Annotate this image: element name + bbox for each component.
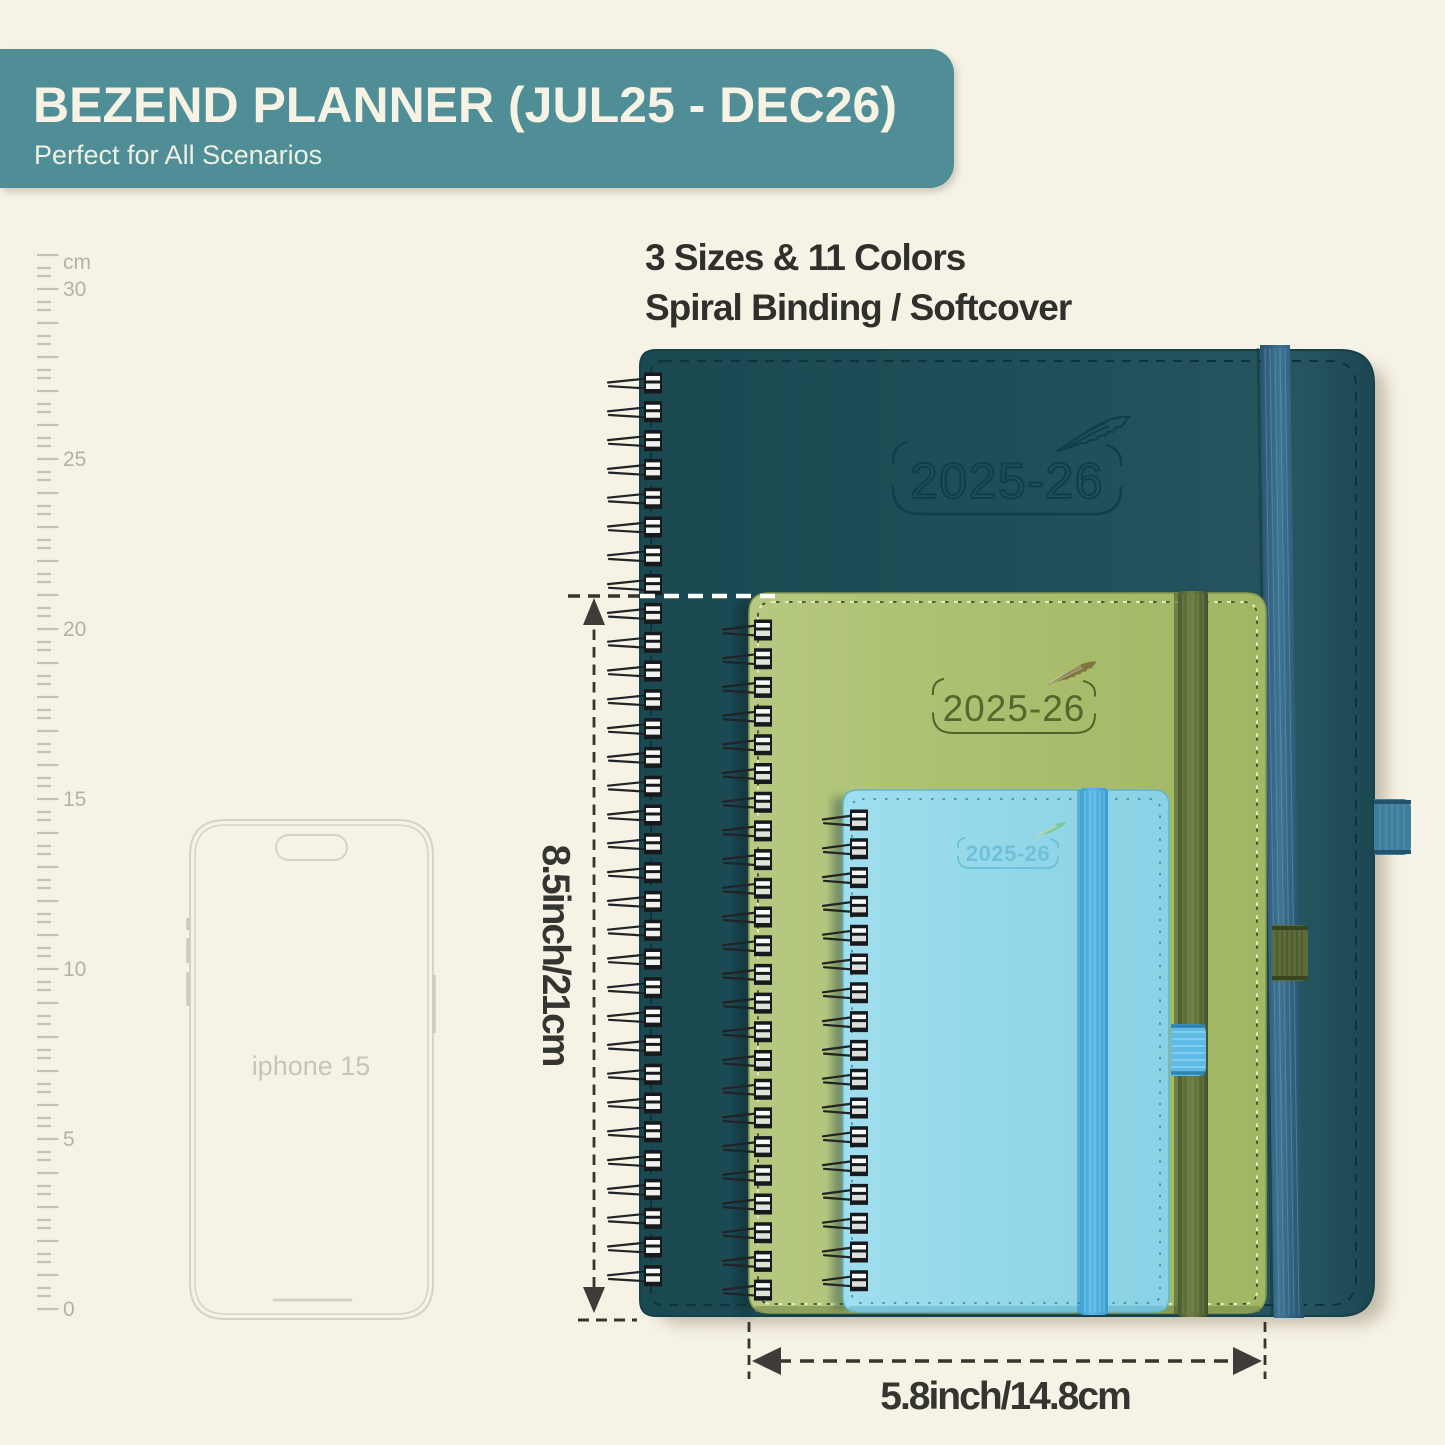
svg-text:2025-26: 2025-26 — [943, 688, 1086, 729]
svg-text:20: 20 — [63, 618, 86, 641]
svg-text:2025-26: 2025-26 — [910, 453, 1104, 509]
svg-text:10: 10 — [63, 958, 86, 981]
svg-text:0: 0 — [63, 1298, 75, 1321]
svg-text:cm: cm — [63, 251, 91, 274]
svg-text:5: 5 — [63, 1128, 75, 1151]
svg-text:15: 15 — [63, 788, 86, 811]
svg-text:2025-26: 2025-26 — [966, 841, 1050, 866]
svg-text:30: 30 — [63, 278, 86, 301]
svg-text:25: 25 — [63, 448, 86, 471]
